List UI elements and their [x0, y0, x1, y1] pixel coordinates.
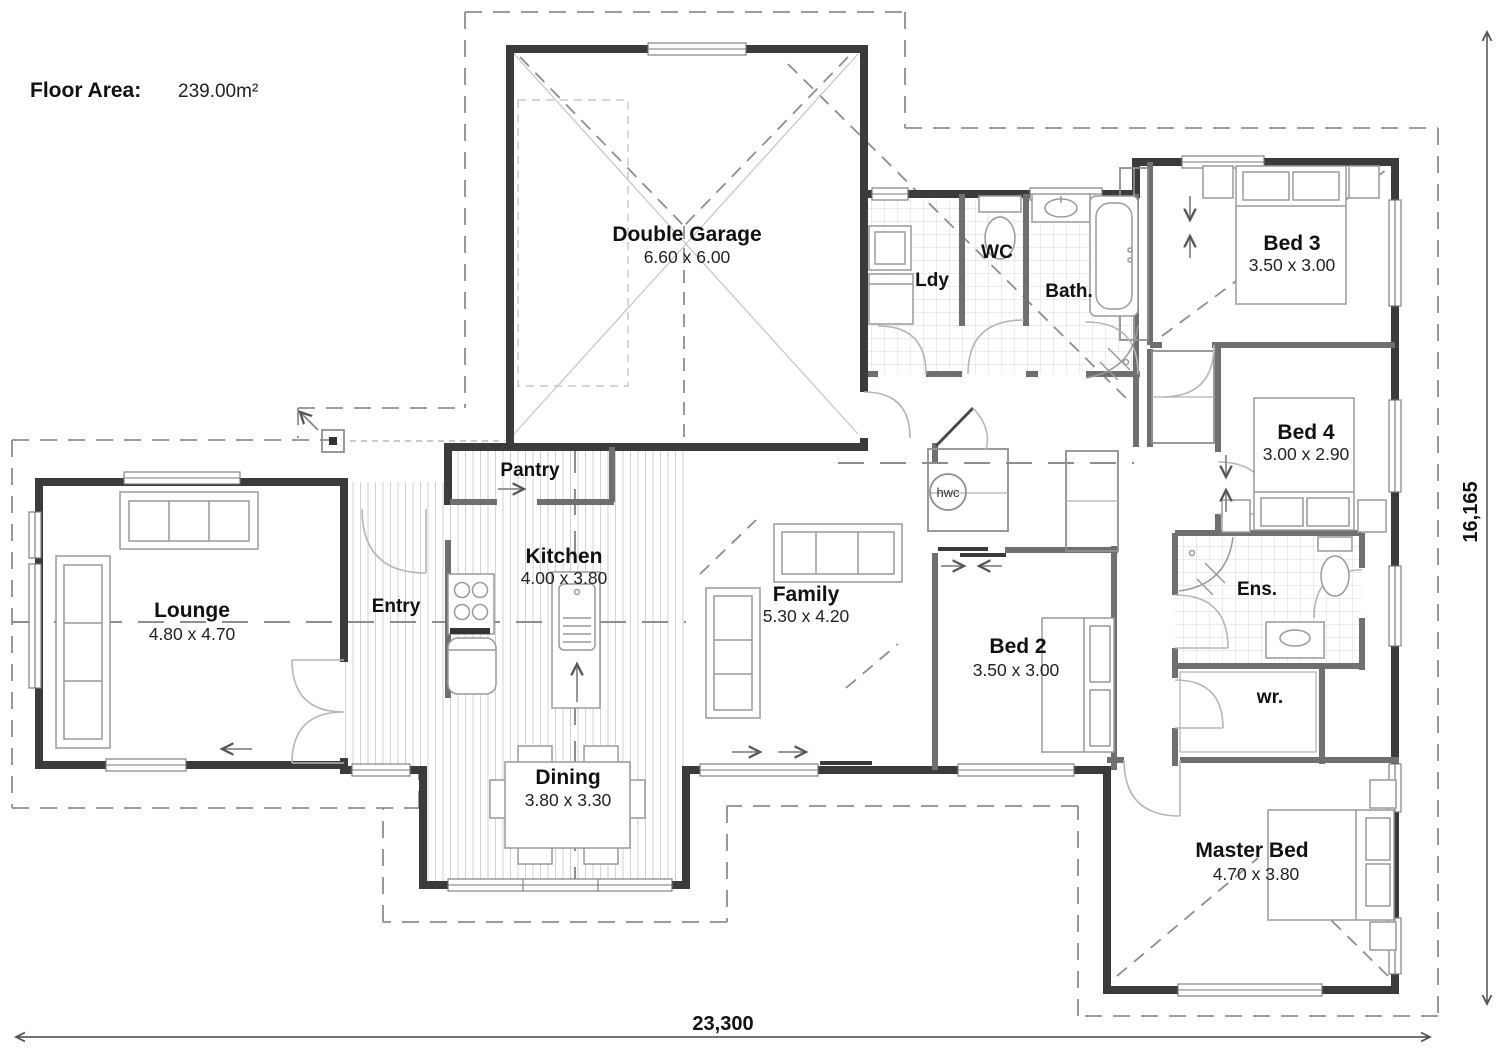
floor-plan: Double Garage 6.60 x 6.00 Lounge 4.80 x … [0, 0, 1501, 1053]
bath-vanity [1032, 194, 1090, 222]
ensuite-toilet [1318, 537, 1352, 596]
room-label-lounge: Lounge [154, 599, 230, 622]
room-label-bed-3: Bed 3 [1263, 232, 1320, 255]
window [648, 43, 746, 55]
window [872, 188, 908, 200]
window [124, 472, 240, 484]
room-label-bed-2: Bed 2 [989, 635, 1046, 658]
window [1178, 984, 1322, 996]
master-door [1124, 760, 1180, 816]
floor-area-label: Floor Area: [30, 79, 141, 102]
room-label-dining: Dining [535, 766, 600, 789]
room-size-double-garage: 6.60 x 6.00 [644, 247, 731, 267]
room-label-ensuite: Ens. [1237, 579, 1277, 600]
room-size-kitchen: 4.00 x 3.80 [521, 568, 608, 588]
family-sofa-1 [774, 524, 902, 582]
slider-bed2 [938, 547, 988, 551]
window [1389, 200, 1401, 306]
window [958, 764, 1074, 776]
washing-machine [869, 274, 913, 324]
lounge-double-door [292, 660, 344, 763]
bed2-bed [1042, 618, 1114, 752]
height-dimension-value: 16,165 [1460, 481, 1482, 542]
slider-family [820, 761, 872, 765]
room-label-wc: WC [981, 242, 1013, 263]
room-label-kitchen: Kitchen [525, 545, 602, 568]
lounge-sofa-1 [120, 492, 258, 549]
family-sofa-2 [706, 588, 760, 718]
width-dimension-value: 23,300 [692, 1013, 753, 1035]
room-size-family: 5.30 x 4.20 [763, 606, 850, 626]
window [29, 512, 41, 558]
window [448, 879, 672, 891]
floor-area-value: 239.00m² [178, 81, 258, 102]
kitchen-bench [448, 574, 494, 634]
oven-front [450, 628, 490, 634]
lounge-sofa-2 [56, 556, 110, 748]
window [106, 759, 186, 771]
room-size-bed-4: 3.00 x 2.90 [1263, 444, 1350, 464]
window [29, 564, 41, 688]
room-label-laundry: Ldy [915, 270, 949, 291]
kitchen-hall-door-leaf [936, 408, 973, 446]
kitchen-fridge [448, 638, 496, 694]
window [352, 764, 410, 776]
window [1389, 566, 1401, 646]
room-label-bed-4: Bed 4 [1277, 421, 1335, 444]
room-size-bed-3: 3.50 x 3.00 [1249, 255, 1336, 275]
ensuite-vanity [1266, 622, 1324, 658]
room-size-dining: 3.80 x 3.30 [525, 790, 612, 810]
room-size-lounge: 4.80 x 4.70 [149, 624, 236, 644]
window [700, 764, 818, 776]
bathtub [1090, 196, 1138, 316]
room-label-master-bed: Master Bed [1195, 839, 1308, 862]
room-label-wr: wr. [1256, 687, 1283, 708]
garage-hall-door [864, 392, 910, 438]
room-size-bed-2: 3.50 x 3.00 [973, 660, 1060, 680]
room-size-master-bed: 4.70 x 3.80 [1213, 864, 1300, 884]
timber-floor-entry [344, 482, 448, 766]
room-label-double-garage: Double Garage [612, 223, 761, 246]
header: Floor Area: 239.00m² [30, 79, 258, 102]
room-label-entry: Entry [372, 596, 421, 617]
room-label-bathroom: Bath. [1045, 281, 1093, 302]
laundry-tub [869, 226, 911, 270]
window [1389, 400, 1401, 492]
wr-door [1175, 680, 1223, 728]
room-label-pantry: Pantry [500, 460, 560, 481]
bed4-bed [1222, 398, 1386, 532]
kitchen-island [552, 572, 600, 708]
bed3-door [1162, 345, 1214, 397]
room-label-family: Family [773, 583, 840, 606]
room-label-hwc: hwc [936, 485, 960, 500]
porch-post [322, 430, 344, 452]
room-labels: Double Garage 6.60 x 6.00 Lounge 4.80 x … [149, 223, 1350, 884]
